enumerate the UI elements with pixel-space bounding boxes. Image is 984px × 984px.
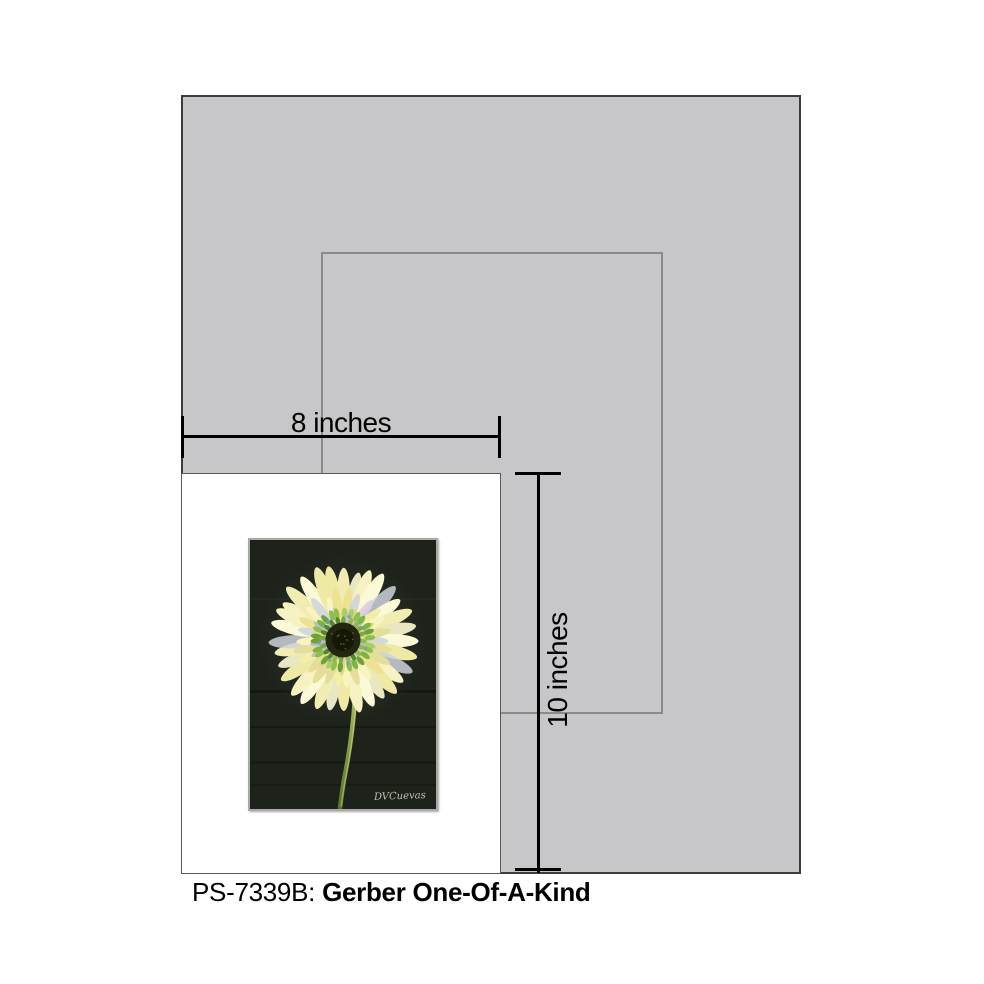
caption: PS-7339B:Gerber One-Of-A-Kind	[192, 879, 591, 905]
gerbera-flower-illustration: DVCuevas	[250, 540, 436, 809]
height-dimension-line	[537, 472, 540, 873]
height-dimension-label: 10 inches	[544, 612, 572, 727]
width-dimension: 8 inches	[181, 416, 501, 458]
product-mockup-page: DVCuevas 8 inches 10 inches PS-7339B:Ger…	[0, 0, 984, 984]
artist-signature: DVCuevas	[373, 790, 426, 803]
caption-title: Gerber One-Of-A-Kind	[322, 877, 590, 907]
width-dimension-label: 8 inches	[181, 409, 501, 437]
caption-sku: PS-7339B:	[192, 877, 315, 907]
artwork-frame: DVCuevas	[248, 538, 438, 811]
flower-center	[326, 623, 361, 658]
